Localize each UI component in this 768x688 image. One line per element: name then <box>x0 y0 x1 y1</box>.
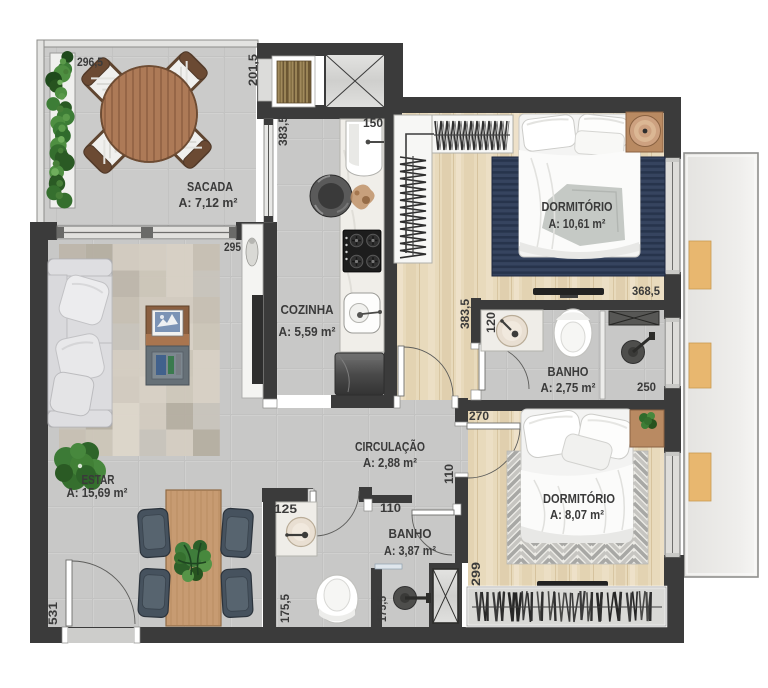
svg-text:A: 10,61 m²: A: 10,61 m² <box>549 216 607 231</box>
svg-text:383,5: 383,5 <box>460 298 472 329</box>
svg-text:DORMITÓRIO: DORMITÓRIO <box>543 491 615 506</box>
svg-text:A: 2,75 m²: A: 2,75 m² <box>541 380 597 395</box>
svg-text:250: 250 <box>637 382 656 394</box>
svg-text:A: 15,69 m²: A: 15,69 m² <box>67 485 129 500</box>
svg-text:296,5: 296,5 <box>77 57 104 69</box>
svg-text:201,5: 201,5 <box>248 53 260 86</box>
svg-text:COZINHA: COZINHA <box>281 302 335 317</box>
svg-text:531: 531 <box>48 601 60 625</box>
svg-text:175,5: 175,5 <box>280 593 292 623</box>
svg-text:120: 120 <box>486 312 498 333</box>
svg-text:150: 150 <box>363 118 383 130</box>
svg-text:A: 7,12 m²: A: 7,12 m² <box>179 195 239 210</box>
svg-text:110: 110 <box>380 503 401 515</box>
svg-text:110: 110 <box>444 464 456 484</box>
svg-text:295: 295 <box>224 242 242 254</box>
svg-text:383,5: 383,5 <box>278 115 290 146</box>
svg-text:BANHO: BANHO <box>389 526 432 541</box>
svg-text:368,5: 368,5 <box>632 286 661 298</box>
svg-text:299: 299 <box>471 562 483 586</box>
svg-text:CIRCULAÇÃO: CIRCULAÇÃO <box>355 439 425 454</box>
svg-text:DORMITÓRIO: DORMITÓRIO <box>542 199 613 214</box>
svg-text:A: 5,59 m²: A: 5,59 m² <box>279 324 337 339</box>
svg-text:A: 3,87 m²: A: 3,87 m² <box>384 543 437 558</box>
svg-text:SACADA: SACADA <box>187 179 233 194</box>
svg-text:175,5: 175,5 <box>377 595 389 622</box>
svg-text:BANHO: BANHO <box>548 364 589 379</box>
svg-text:270: 270 <box>469 411 489 423</box>
svg-text:A: 8,07 m²: A: 8,07 m² <box>550 507 605 522</box>
svg-text:A: 2,88 m²: A: 2,88 m² <box>363 455 418 470</box>
svg-text:125: 125 <box>274 504 298 516</box>
